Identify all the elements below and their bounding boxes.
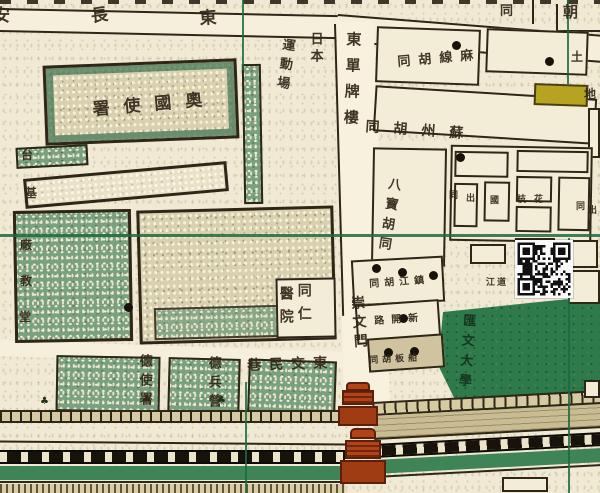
railway-left	[0, 450, 345, 464]
map-dot	[429, 271, 438, 280]
gate-tower-top	[336, 380, 380, 428]
map-dot	[124, 303, 133, 312]
map-dot	[545, 57, 554, 66]
green-band-left	[0, 466, 345, 480]
german-barracks-block	[167, 357, 240, 415]
gridline-h1	[0, 234, 600, 237]
map-label-nihon: 日本	[308, 32, 322, 66]
arrow-tower-tier	[345, 440, 381, 459]
map-label-undojo: 運動場	[273, 37, 294, 95]
lot	[515, 206, 551, 233]
green-column-block	[242, 64, 263, 204]
map-label-german-legation: 德使署	[137, 354, 151, 411]
outer-building-bottom	[502, 477, 548, 492]
map-label-lot-char-1: 同	[449, 192, 458, 201]
map-label-lot-char-5: 花	[534, 196, 543, 205]
small-lot-a	[470, 244, 506, 264]
map-label-lot-char-2: 出	[466, 195, 475, 204]
tree-icon: ♣	[40, 396, 49, 407]
map-canvas: 安長東同朝日本運動場東單牌樓同胡線麻土地同胡州蘇八寶胡同同出國枝花同出匯文大學同…	[0, 0, 600, 493]
map-label-dongjiaominxiang: 巷民交東	[247, 356, 335, 374]
outer-building-small	[584, 380, 600, 398]
map-label-topright-char-chao: 朝	[563, 5, 578, 21]
map-label-changan-char-dong: 東	[199, 10, 217, 29]
gridline-v1-top	[242, 0, 244, 70]
map-label-tudi-char-di: 地	[584, 88, 596, 101]
dark-line-left	[0, 481, 345, 483]
map-dot	[456, 153, 465, 162]
map-label-topright-char-tong: 同	[500, 5, 513, 19]
arrow-tower-base	[340, 460, 386, 484]
lot	[516, 150, 588, 173]
trapezoid-block	[367, 333, 445, 372]
map-label-taijichang-tai: 台	[21, 149, 33, 162]
map-label-changan-char-chang: 長	[90, 7, 109, 27]
map-label-dongdan-pailou: 東單牌樓	[341, 31, 360, 135]
map-label-chongwenmen: 崇文門	[349, 295, 368, 353]
gate-tier	[342, 390, 374, 405]
map-label-jiaotang-jiao: 教	[20, 275, 32, 288]
arrow-tower-roof	[350, 428, 376, 439]
lot	[453, 183, 478, 227]
map-label-german-barracks: 德兵營	[206, 356, 220, 413]
map-label-lot-char-6: 同	[576, 203, 585, 212]
map-label-lot-char-4: 枝	[517, 196, 526, 205]
city-wall-crenellation-left	[0, 410, 345, 423]
wall-rail-right-segment	[372, 384, 600, 493]
lot	[557, 177, 590, 232]
gate-base	[338, 406, 378, 426]
map-label-taijichang-chang: 廠	[20, 239, 32, 252]
yellow-lot	[534, 83, 589, 107]
map-label-lot-char-7: 出	[588, 207, 597, 216]
arrow-tower	[338, 428, 388, 486]
map-label-lot-char-3: 國	[490, 197, 499, 206]
qr-code	[515, 240, 573, 298]
gridline-v1-bottom	[245, 382, 247, 493]
map-label-jiaotang-tang: 堂	[19, 311, 31, 324]
map-label-changan-char-an: 安	[0, 8, 10, 26]
map-dot	[372, 264, 381, 273]
map-label-tongren-col: 同仁	[296, 283, 311, 329]
hatch-strip-left	[0, 484, 345, 493]
map-label-taijichang-ji: 基	[25, 187, 37, 200]
map-label-yiyuan-col: 醫院	[278, 286, 293, 332]
map-label-tudi-char-tu: 土	[571, 51, 583, 64]
map-label-jiang-dao: 江道	[486, 279, 508, 288]
